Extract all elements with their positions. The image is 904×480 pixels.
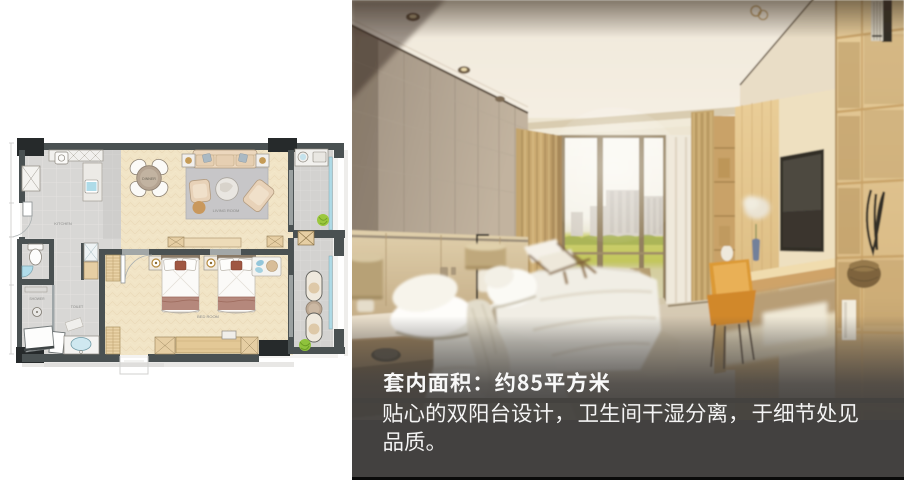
svg-text:SHOWER: SHOWER (29, 297, 45, 301)
svg-text:DINNER: DINNER (142, 177, 156, 181)
svg-text:TOILET: TOILET (71, 305, 84, 309)
svg-text:KITCHEN: KITCHEN (54, 221, 72, 226)
svg-text:LIVING ROOM: LIVING ROOM (213, 208, 240, 213)
svg-text:BED ROOM: BED ROOM (197, 314, 219, 319)
